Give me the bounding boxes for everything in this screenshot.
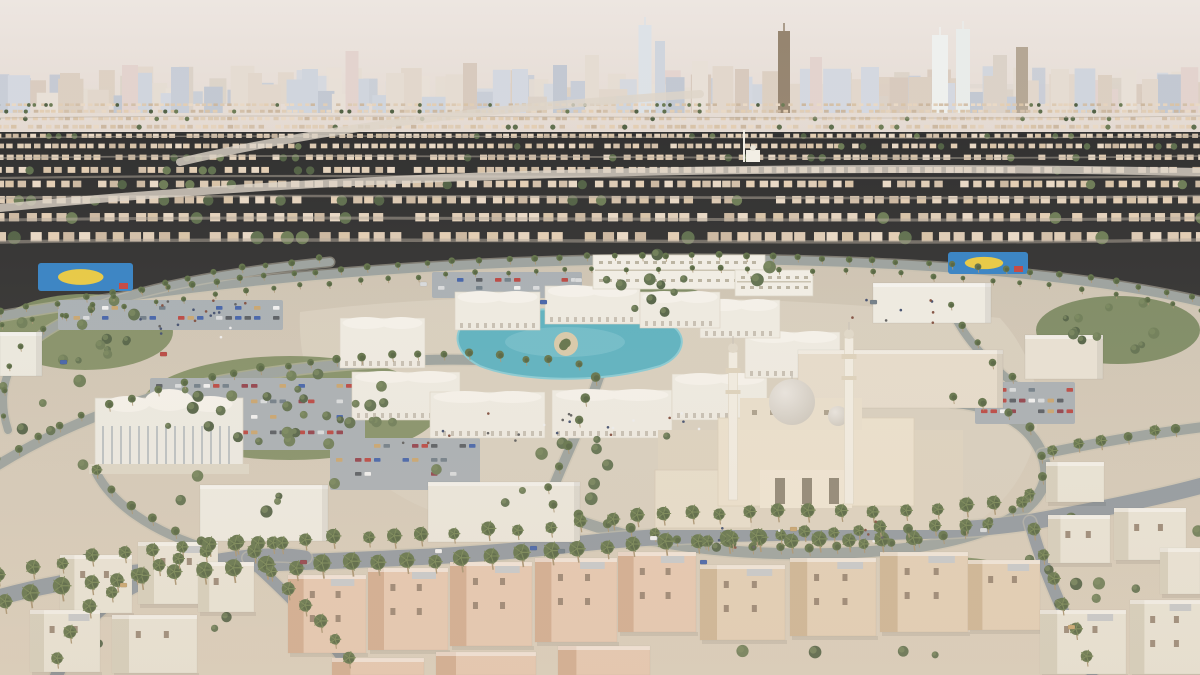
light-wash [0,0,1200,675]
aerial-city-scene [0,0,1200,675]
city-masterplan-render [0,0,1200,675]
